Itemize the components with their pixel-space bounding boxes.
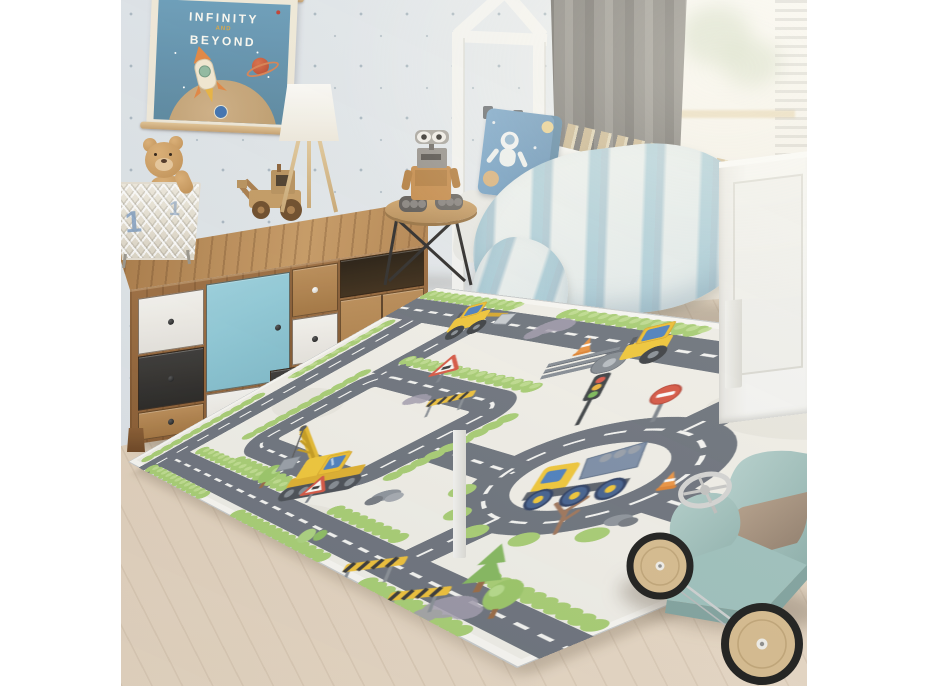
ride-on-toy-car <box>619 446 807 686</box>
black-drawer <box>138 347 204 411</box>
poster-sheet: INFINITY AND BEYOND <box>146 0 298 132</box>
rear-wheel <box>725 607 799 681</box>
dresser-foot <box>127 428 145 452</box>
wooden-toy-tractor <box>233 160 309 224</box>
small-wood-drawer <box>292 263 338 318</box>
space-poster: INFINITY AND BEYOND <box>144 0 300 137</box>
teddy-bear-eye <box>169 153 172 156</box>
headboard-post-front <box>453 430 466 558</box>
footboard-leg <box>725 299 742 389</box>
walle-robot <box>393 124 469 216</box>
star <box>256 51 258 53</box>
window-foliage <box>721 40 781 86</box>
basket-numeral-2: 1 <box>168 198 180 222</box>
poster-panel: INFINITY AND BEYOND <box>153 0 290 125</box>
lamp-shade <box>279 84 339 141</box>
white-drawer <box>138 289 204 355</box>
star <box>267 76 269 78</box>
footboard-panel <box>733 174 803 377</box>
teddy-bear-nose <box>161 159 167 163</box>
room-photo: INFINITY AND BEYOND <box>121 0 807 686</box>
front-wheel <box>630 536 690 596</box>
teddy-bear-eye <box>154 153 157 156</box>
lamp-leg <box>307 140 311 208</box>
screenshot-canvas: INFINITY AND BEYOND <box>0 0 928 686</box>
wire-basket: 1 1 <box>121 182 201 260</box>
basket-numeral: 1 <box>124 205 143 240</box>
